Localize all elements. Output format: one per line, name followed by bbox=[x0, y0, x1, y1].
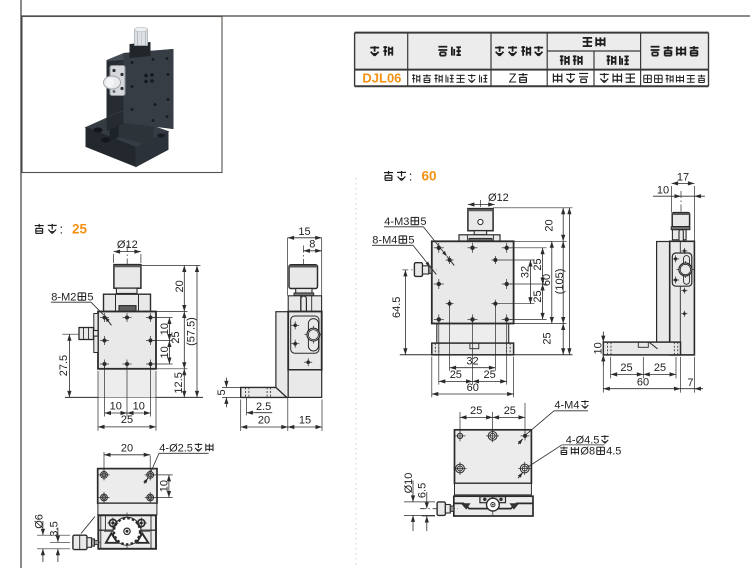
svg-text:25: 25 bbox=[484, 369, 496, 381]
svg-text:10: 10 bbox=[657, 185, 669, 197]
svg-text:20: 20 bbox=[258, 414, 270, 426]
svg-text:25: 25 bbox=[72, 222, 88, 237]
svg-text:10: 10 bbox=[110, 400, 122, 412]
svg-text:Ø12: Ø12 bbox=[117, 239, 138, 251]
svg-text:60: 60 bbox=[637, 377, 649, 389]
svg-text:8: 8 bbox=[309, 239, 315, 251]
svg-text:20: 20 bbox=[121, 443, 133, 455]
svg-text:DJL06: DJL06 bbox=[362, 71, 401, 86]
svg-text:25: 25 bbox=[654, 362, 666, 374]
svg-text:10: 10 bbox=[133, 400, 145, 412]
svg-text:5: 5 bbox=[408, 234, 414, 246]
svg-text:32: 32 bbox=[466, 355, 478, 367]
svg-text:20: 20 bbox=[543, 219, 555, 231]
svg-text:32: 32 bbox=[520, 266, 532, 278]
svg-text:27.5: 27.5 bbox=[58, 355, 70, 376]
svg-text:60: 60 bbox=[467, 382, 479, 394]
svg-text:25: 25 bbox=[121, 414, 133, 426]
svg-text:6.5: 6.5 bbox=[416, 483, 428, 498]
svg-text:4.5: 4.5 bbox=[606, 446, 621, 458]
svg-text:(105): (105) bbox=[554, 269, 566, 295]
svg-text::: : bbox=[60, 222, 64, 237]
svg-text:15: 15 bbox=[298, 226, 310, 238]
svg-text:7: 7 bbox=[687, 377, 693, 389]
svg-text:5: 5 bbox=[216, 389, 228, 395]
svg-text:64.5: 64.5 bbox=[391, 297, 403, 318]
svg-text:60: 60 bbox=[541, 274, 553, 286]
svg-text:Ø12: Ø12 bbox=[488, 192, 509, 204]
svg-text:Ø8: Ø8 bbox=[580, 446, 595, 458]
svg-text:10: 10 bbox=[592, 342, 604, 354]
svg-text:25: 25 bbox=[504, 405, 516, 417]
svg-text:25: 25 bbox=[470, 405, 482, 417]
svg-text:2.5: 2.5 bbox=[256, 401, 271, 413]
svg-text:15: 15 bbox=[299, 414, 311, 426]
svg-text:Z: Z bbox=[509, 71, 517, 86]
svg-text:4-M4: 4-M4 bbox=[554, 399, 579, 411]
svg-text:20: 20 bbox=[174, 280, 186, 292]
svg-text:60: 60 bbox=[422, 169, 437, 184]
svg-text:8-M2: 8-M2 bbox=[51, 291, 76, 303]
svg-text:25: 25 bbox=[532, 290, 544, 302]
svg-text:25: 25 bbox=[532, 258, 544, 270]
svg-text:25: 25 bbox=[170, 331, 182, 343]
svg-text:8-M4: 8-M4 bbox=[372, 234, 397, 246]
svg-text:25: 25 bbox=[620, 362, 632, 374]
svg-text:(57.5): (57.5) bbox=[186, 317, 198, 346]
svg-text:10: 10 bbox=[159, 346, 171, 358]
svg-text:25: 25 bbox=[542, 332, 554, 344]
svg-text:Ø6: Ø6 bbox=[34, 514, 46, 529]
svg-text:5: 5 bbox=[420, 216, 426, 228]
svg-text:25: 25 bbox=[450, 369, 462, 381]
svg-text:Ø10: Ø10 bbox=[403, 473, 415, 494]
svg-text:10: 10 bbox=[159, 480, 171, 492]
svg-text:3.5: 3.5 bbox=[48, 521, 60, 536]
svg-text:17: 17 bbox=[677, 171, 689, 183]
svg-text:4-M3: 4-M3 bbox=[384, 216, 409, 228]
svg-text:4-Ø2.5: 4-Ø2.5 bbox=[159, 442, 193, 454]
svg-text:5: 5 bbox=[87, 291, 93, 303]
svg-text:12.5: 12.5 bbox=[173, 372, 185, 393]
svg-text::: : bbox=[409, 169, 413, 184]
